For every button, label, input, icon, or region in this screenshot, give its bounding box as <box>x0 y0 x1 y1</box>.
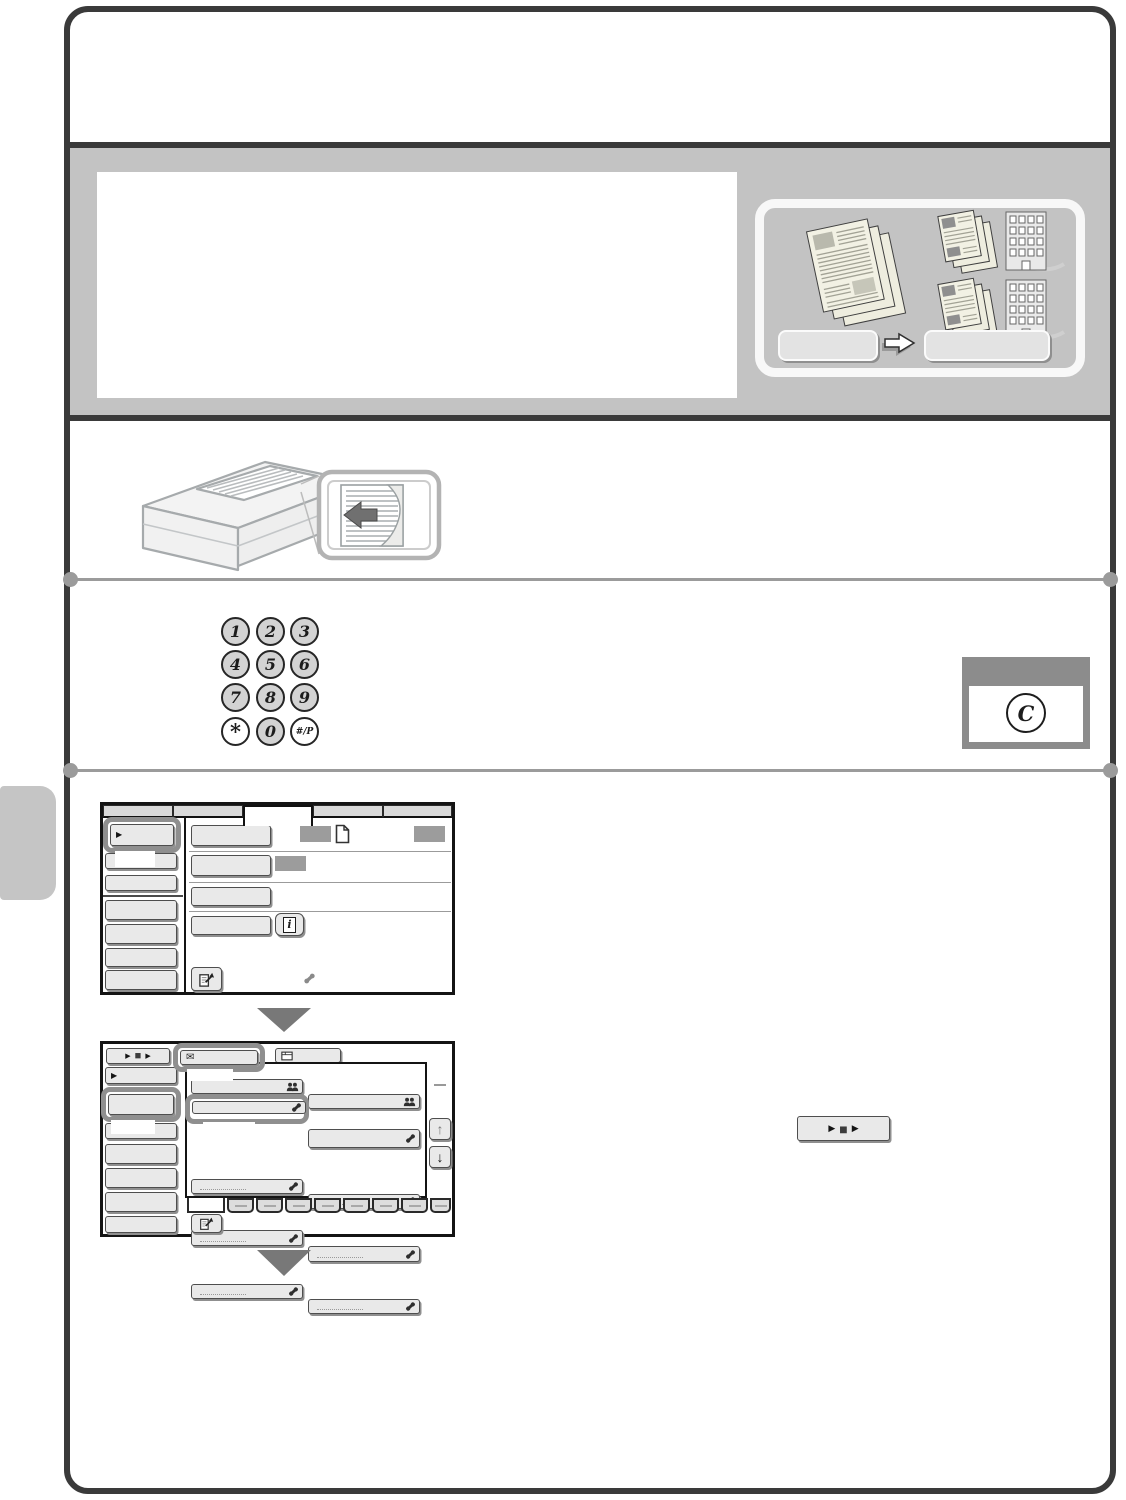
row-separator <box>189 911 451 912</box>
info-button[interactable]: i <box>275 913 304 936</box>
index-tab[interactable] <box>314 1198 341 1213</box>
keypad-key-9[interactable]: 9 <box>290 683 319 712</box>
phone-icon <box>288 1286 299 1297</box>
keypad-key-4[interactable]: 4 <box>221 650 250 679</box>
play-icon: ▶ <box>852 1124 859 1133</box>
job-status-key-inline: ▶ ■ ▶ <box>797 1116 890 1141</box>
fax-broadcast-illustration <box>755 199 1085 377</box>
blank-label <box>200 1294 246 1295</box>
keypad-key-7[interactable]: 7 <box>221 683 250 712</box>
blank-label <box>200 1189 246 1190</box>
one-touch-key-8[interactable] <box>308 1299 420 1314</box>
highlight-callout <box>185 1094 309 1124</box>
setting-button-2[interactable] <box>191 855 271 876</box>
blank-label <box>409 1205 421 1207</box>
sidebar-button-6[interactable] <box>105 948 177 967</box>
sidebar-button-5[interactable] <box>105 1168 177 1188</box>
value-placeholder <box>300 826 331 842</box>
divider-dot <box>1103 572 1118 587</box>
step-divider-1 <box>70 578 1110 581</box>
sidebar-button-7[interactable] <box>105 1216 177 1233</box>
transition-arrow-icon <box>882 330 920 358</box>
tab-active[interactable] <box>243 805 313 826</box>
phone-icon <box>405 1249 416 1260</box>
sidebar-divider <box>103 895 183 897</box>
sidebar-button-5[interactable] <box>105 924 177 944</box>
index-tab-active[interactable] <box>187 1198 225 1213</box>
row-separator <box>189 882 451 883</box>
address-key-group-2[interactable] <box>308 1094 420 1109</box>
one-touch-key-3[interactable] <box>191 1179 303 1194</box>
sidebar-arrow-icon: ▶ <box>111 1072 117 1080</box>
play-icon: ▶ <box>145 1053 150 1060</box>
keypad-key-star[interactable]: * <box>221 717 250 746</box>
phone-icon <box>288 1233 299 1244</box>
address-key-group-1[interactable] <box>191 1079 303 1094</box>
sidebar-button-4[interactable] <box>105 1144 177 1164</box>
one-touch-key-7[interactable] <box>191 1284 303 1299</box>
highlight-callout: ▶ <box>103 817 181 853</box>
blank-label <box>293 1205 305 1207</box>
mode-key-after <box>924 330 1050 361</box>
group-icon <box>403 1097 416 1107</box>
mode-key-before <box>778 330 878 361</box>
sidebar-button-2[interactable] <box>108 1094 174 1115</box>
one-touch-key-2[interactable] <box>308 1129 420 1148</box>
index-tab[interactable] <box>256 1198 283 1213</box>
address-book-screen: ▶ ■ ▶ ✉ ▶ <box>100 1041 455 1237</box>
original-page-icon <box>335 824 350 844</box>
index-tab[interactable] <box>343 1198 370 1213</box>
clear-key-panel-header <box>969 664 1083 686</box>
quick-file-button[interactable] <box>191 967 222 991</box>
sidebar-button-7[interactable] <box>105 970 177 990</box>
speaker-phone-icon <box>303 972 316 985</box>
pen-note-icon <box>199 1216 214 1231</box>
keypad-key-0[interactable]: 0 <box>256 717 285 746</box>
callout-tail <box>115 851 155 867</box>
step-divider-2 <box>70 769 1110 772</box>
keypad-key-pound-p[interactable]: #/P <box>290 717 319 746</box>
index-tab[interactable] <box>285 1198 312 1213</box>
phone-icon <box>405 1301 416 1312</box>
index-tab[interactable] <box>227 1198 254 1213</box>
machine-original-illustration <box>105 444 465 584</box>
envelope-icon: ✉ <box>186 1053 194 1063</box>
callout-tail <box>111 1120 155 1134</box>
setting-button-1[interactable] <box>191 825 271 846</box>
value-placeholder <box>414 826 445 842</box>
scroll-up-button[interactable]: ↑ <box>429 1118 451 1140</box>
index-tab[interactable] <box>372 1198 399 1213</box>
stop-icon: ■ <box>839 1122 847 1136</box>
blank-label <box>317 1309 363 1310</box>
sidebar-button-1[interactable]: ▶ <box>110 824 174 846</box>
callout-tail <box>187 1069 233 1081</box>
one-touch-key-1[interactable] <box>192 1101 306 1114</box>
sidebar-arrow-icon: ▶ <box>116 831 122 839</box>
clear-key[interactable]: C <box>1006 693 1046 733</box>
job-status-display[interactable]: ▶ ■ ▶ <box>106 1048 170 1064</box>
address-tab-2[interactable] <box>275 1048 341 1063</box>
phone-icon <box>405 1133 416 1144</box>
phone-icon <box>288 1181 299 1192</box>
divider-dot <box>63 572 78 587</box>
keypad-key-5[interactable]: 5 <box>256 650 285 679</box>
quick-file-button[interactable] <box>191 1214 222 1233</box>
keypad-key-8[interactable]: 8 <box>256 683 285 712</box>
manual-page: 1 2 3 4 5 6 7 8 9 * 0 #/P C ▶ <box>0 0 1126 1500</box>
destination-illustration-1 <box>932 206 1068 278</box>
intro-text-box <box>97 172 737 398</box>
info-icon: i <box>283 917 296 933</box>
sidebar-button-4[interactable] <box>105 900 177 920</box>
index-tab[interactable] <box>401 1198 428 1213</box>
blank-label <box>380 1205 392 1207</box>
setting-button-3[interactable] <box>191 887 271 906</box>
pen-note-icon <box>198 971 215 988</box>
highlight-callout <box>101 1087 181 1122</box>
one-touch-key-6[interactable] <box>308 1246 420 1262</box>
document-stack-illustration <box>802 216 920 328</box>
address-book-icon <box>281 1051 293 1061</box>
keypad-key-2[interactable]: 2 <box>256 617 285 646</box>
keypad-key-1[interactable]: 1 <box>221 617 250 646</box>
sidebar-separator <box>184 817 186 992</box>
sidebar-button-3[interactable] <box>105 875 177 891</box>
blank-label <box>264 1205 276 1207</box>
blank-label <box>317 1257 363 1258</box>
page-edge-tab <box>0 786 56 900</box>
callout-tail <box>203 1122 255 1130</box>
step-arrow-down <box>257 1008 311 1032</box>
play-icon: ▶ <box>828 1124 835 1133</box>
sidebar-button-1[interactable]: ▶ <box>105 1067 177 1084</box>
clear-key-panel: C <box>962 657 1090 749</box>
keypad-key-3[interactable]: 3 <box>290 617 319 646</box>
index-tab[interactable] <box>430 1198 451 1213</box>
scroll-down-button[interactable]: ↓ <box>429 1146 451 1168</box>
divider-dot <box>1103 763 1118 778</box>
tab-4[interactable] <box>313 805 383 818</box>
blank-label <box>322 1205 334 1207</box>
value-placeholder <box>275 856 306 871</box>
phone-icon <box>291 1102 302 1113</box>
blank-label <box>351 1205 363 1207</box>
blank-label <box>435 1205 447 1207</box>
highlight-callout: ✉ <box>173 1043 265 1072</box>
address-tab-1[interactable]: ✉ <box>180 1050 258 1065</box>
stop-icon: ■ <box>135 1051 142 1062</box>
scroll-up-icon: ↑ <box>437 1121 444 1137</box>
scroll-down-icon: ↓ <box>437 1149 444 1165</box>
row-separator <box>189 851 451 852</box>
numeric-keypad: 1 2 3 4 5 6 7 8 9 * 0 #/P <box>221 617 331 747</box>
step-arrow-down <box>257 1250 311 1276</box>
play-icon: ▶ <box>125 1053 130 1060</box>
keypad-key-6[interactable]: 6 <box>290 650 319 679</box>
setting-button-4[interactable] <box>191 916 271 935</box>
sidebar-button-6[interactable] <box>105 1192 177 1212</box>
blank-label <box>235 1205 247 1207</box>
group-icon <box>286 1082 299 1092</box>
divider-dot <box>63 763 78 778</box>
page-indicator <box>434 1084 446 1086</box>
fax-settings-screen: ▶ i <box>100 802 455 995</box>
blank-label <box>200 1241 246 1242</box>
tab-5[interactable] <box>383 805 452 818</box>
